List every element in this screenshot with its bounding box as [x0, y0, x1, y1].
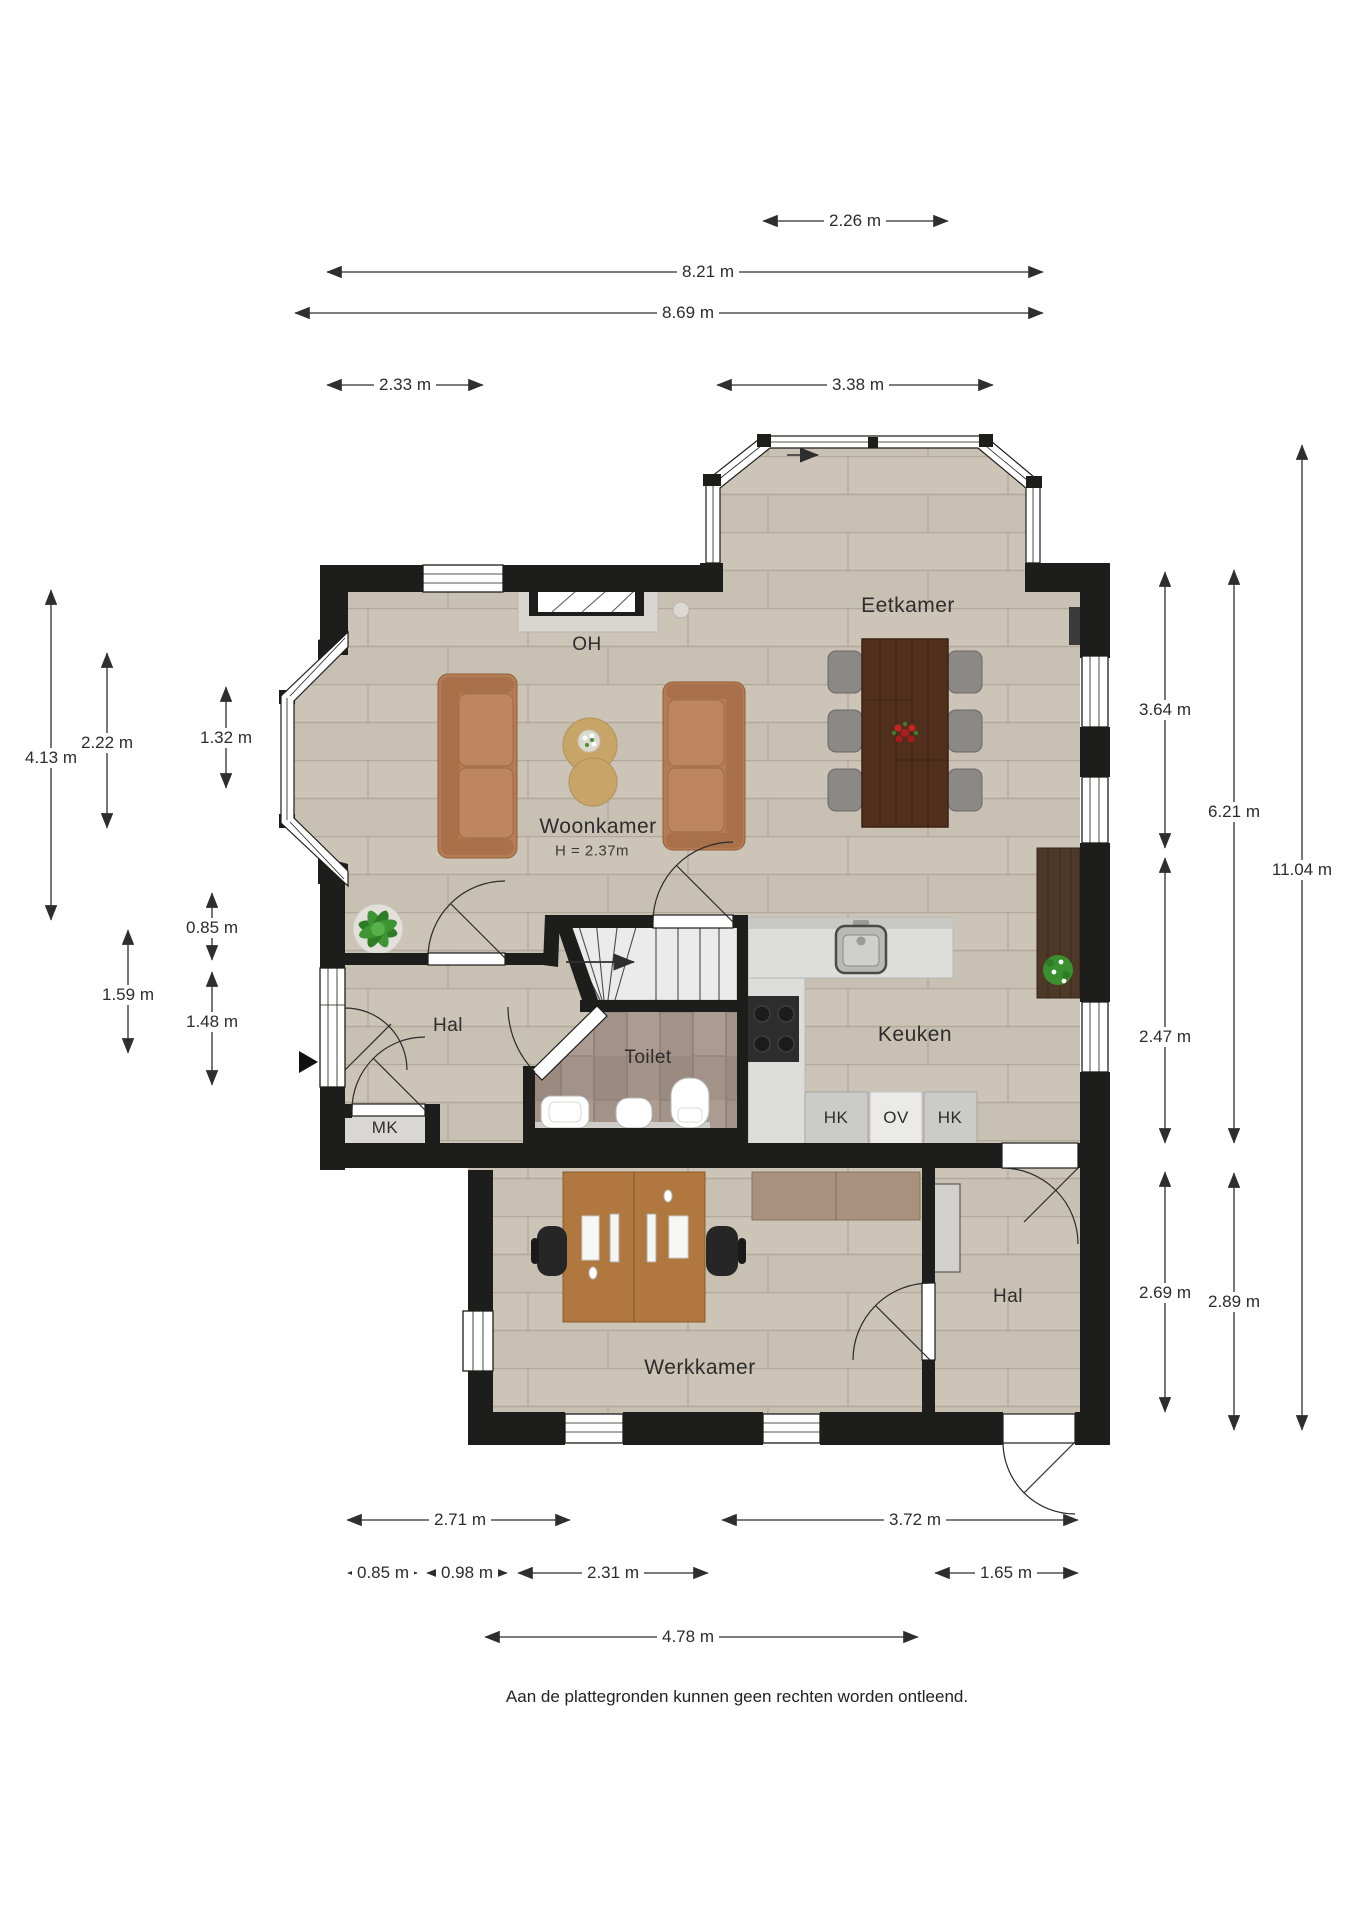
- dim-label-left-6: 1.48 m: [181, 1012, 243, 1032]
- dim-label-right-3: 2.69 m: [1134, 1283, 1196, 1303]
- dim-label-top-1: 2.26 m: [824, 211, 886, 231]
- desk: [563, 1172, 705, 1322]
- disclaimer-text: Aan de plattegronden kunnen geen rechten…: [506, 1687, 968, 1707]
- credenza: [752, 1172, 920, 1220]
- dim-label-top-3: 8.69 m: [657, 303, 719, 323]
- dim-label-right-1: 3.64 m: [1134, 700, 1196, 720]
- dim-label-top-5: 3.38 m: [827, 375, 889, 395]
- radiator: [1069, 607, 1081, 645]
- dining-table: [862, 639, 948, 827]
- entrance-arrow-icon: [299, 1051, 318, 1073]
- room-label-keuken: Keuken: [878, 1023, 952, 1047]
- label-hk-right: HK: [938, 1108, 963, 1128]
- dim-label-left-1: 4.13 m: [20, 748, 82, 768]
- cooktop-icon: [748, 996, 799, 1062]
- room-label-woonkamer-height: H = 2.37m: [555, 843, 629, 860]
- dim-label-right-4: 6.21 m: [1203, 802, 1265, 822]
- dim-label-bottom-6: 1.65 m: [975, 1563, 1037, 1583]
- front-door: [1003, 1414, 1075, 1514]
- window: [763, 1414, 820, 1443]
- room-label-toilet: Toilet: [624, 1047, 671, 1069]
- dim-label-left-2: 2.22 m: [76, 733, 138, 753]
- dim-label-left-4: 0.85 m: [181, 918, 243, 938]
- window: [463, 1311, 493, 1371]
- dim-label-right-6: 11.04 m: [1267, 860, 1337, 880]
- room-label-oh: OH: [572, 634, 602, 656]
- washbasin-icon: [541, 1096, 589, 1128]
- dim-label-bottom-2: 3.72 m: [884, 1510, 946, 1530]
- dim-label-left-3: 1.32 m: [195, 728, 257, 748]
- dim-label-bottom-3: 0.85 m: [352, 1563, 414, 1583]
- sofa-right: [663, 682, 745, 850]
- dim-label-bottom-7: 4.78 m: [657, 1627, 719, 1647]
- room-label-hal-upper: Hal: [433, 1015, 463, 1037]
- dim-label-left-5: 1.59 m: [97, 985, 159, 1005]
- dim-label-right-2: 2.47 m: [1134, 1027, 1196, 1047]
- entrance-sidelight: [320, 968, 345, 1087]
- room-label-eetkamer: Eetkamer: [861, 594, 955, 618]
- fountain-icon: [671, 1078, 709, 1128]
- floorplan-page: { "footer": { "disclaimer": "Aan de plat…: [0, 0, 1358, 1920]
- dim-label-bottom-4: 0.98 m: [436, 1563, 498, 1583]
- pantry-cabinet: [1037, 848, 1080, 998]
- dim-label-bottom-5: 2.31 m: [582, 1563, 644, 1583]
- sofa-left: [438, 674, 517, 858]
- room-label-woonkamer: Woonkamer: [539, 815, 656, 839]
- sink-icon: [836, 920, 886, 973]
- label-ov: OV: [883, 1108, 909, 1128]
- room-label-werkkamer: Werkkamer: [644, 1356, 755, 1380]
- room-label-hal-lower: Hal: [993, 1286, 1023, 1308]
- plant-icon: [353, 904, 403, 954]
- window: [1082, 656, 1108, 727]
- window: [565, 1414, 623, 1443]
- dim-label-right-5: 2.89 m: [1203, 1292, 1265, 1312]
- window: [1082, 777, 1108, 843]
- dim-label-top-4: 2.33 m: [374, 375, 436, 395]
- label-hk-left: HK: [824, 1108, 849, 1128]
- dim-label-bottom-1: 2.71 m: [429, 1510, 491, 1530]
- toilet-icon: [616, 1098, 652, 1128]
- window: [1082, 1002, 1108, 1072]
- side-table-icon: [563, 718, 617, 806]
- window: [423, 565, 503, 592]
- room-label-mk: MK: [372, 1118, 399, 1138]
- dim-label-top-2: 8.21 m: [677, 262, 739, 282]
